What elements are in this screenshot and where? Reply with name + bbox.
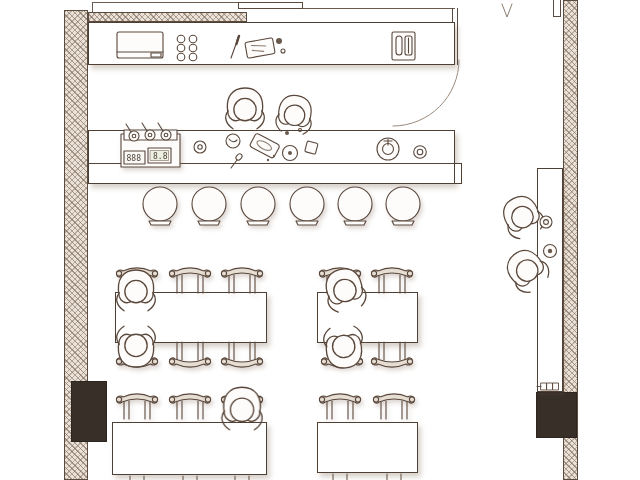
bar-counter: [88, 130, 455, 184]
chair-br-table-2: [373, 394, 414, 419]
bar-counter-divider: [89, 163, 454, 164]
chair-left-table-top-1: [116, 268, 157, 293]
column-left: [71, 381, 107, 442]
chair-bl-table-3: [221, 394, 262, 419]
bar-counter-step: [455, 163, 462, 184]
chair-right-table-top-1: [319, 268, 360, 293]
chair-left-table-bottom-2: [169, 342, 210, 367]
chair-left-table-top-2: [169, 268, 210, 293]
chair-left-table-top-3: [221, 268, 262, 293]
dining-table-right: [317, 292, 418, 343]
bar-stool-6: [386, 187, 420, 225]
back-counter: [88, 22, 455, 65]
door-hinge-mark: [502, 4, 512, 17]
sliding-hatch-panel: [238, 2, 303, 9]
chair-right-table-top-2: [371, 268, 412, 293]
chair-bl-table-1: [116, 394, 157, 419]
bar-stool-3: [241, 187, 275, 225]
chair-left-table-bottom-3: [221, 342, 262, 367]
wall-top: [88, 12, 247, 22]
top-boundary-corner: [92, 2, 93, 12]
column-right: [536, 392, 577, 438]
bar-stool-1: [143, 187, 177, 225]
dining-table-left: [115, 292, 267, 343]
chair-br-table-1: [319, 394, 360, 419]
dining-table-bottom-left: [112, 422, 267, 475]
chair-right-table-bottom-1: [321, 342, 362, 367]
wall-end-cap: [553, 0, 561, 17]
serving-window-line: [303, 8, 455, 9]
dining-table-bottom-right: [317, 422, 418, 473]
door-swing-arc: [393, 60, 459, 126]
person-chef-1: [226, 88, 265, 129]
bar-stool-5: [338, 187, 372, 225]
floor-plan: 888 8.8: [0, 0, 640, 480]
bar-stool-2: [192, 187, 226, 225]
bar-stool-4: [290, 187, 324, 225]
person-chef-2: [275, 93, 315, 135]
chair-left-table-bottom-1: [116, 342, 157, 367]
top-boundary-line: [92, 2, 239, 3]
chair-right-table-bottom-2: [371, 342, 412, 367]
corridor-partition-panel: [537, 168, 563, 392]
chair-bl-table-2: [169, 394, 210, 419]
